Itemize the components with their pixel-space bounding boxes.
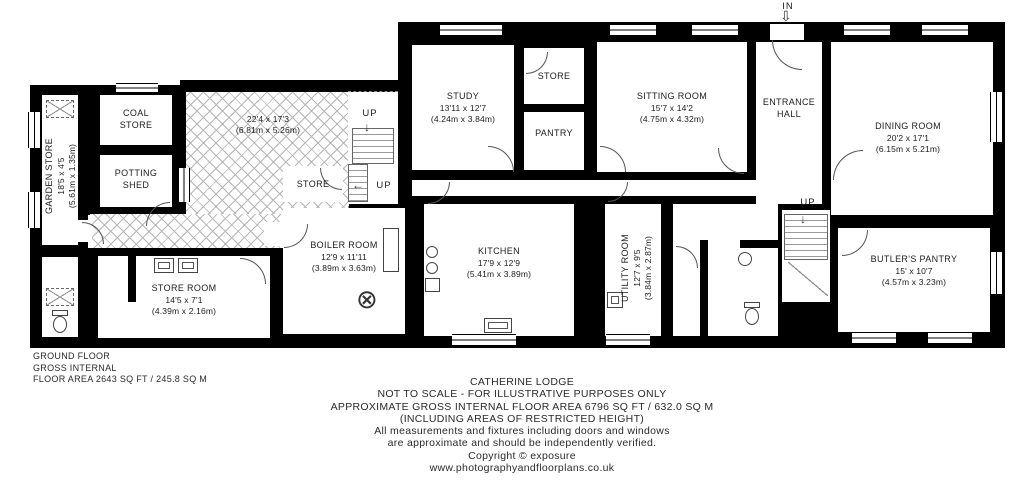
room-label-store-top: STORE [514,71,594,83]
appliance-icon [425,278,440,292]
front-door-opening [770,24,804,40]
window [606,334,650,346]
pantry-interior [524,112,584,170]
window [116,83,158,93]
staircase-main [784,214,828,260]
corridor-interior [412,180,756,196]
entrance-in-arrow-icon: ⇩ [780,8,792,25]
footer-line3: APPROXIMATE GROSS INTERNAL FLOOR AREA 67… [172,401,872,413]
window [922,24,968,36]
room-label-butlers-pantry: BUTLER'S PANTRY 15' x 10'7 (4.57m x 3.23… [834,254,994,288]
window [610,24,656,36]
room-label-courtyard: 22'4 x 17'3 (6.81m x 5.26m) [198,114,338,136]
window [28,112,41,148]
staircase-main-turn [788,262,828,296]
sink-icon [178,258,198,273]
room-label-dining-room: DINING ROOM 20'2 x 17'1 (6.15m x 5.21m) [838,121,978,155]
floorplan-canvas: ⊗ GARDEN STORE 18'5 x 4'5 (5.61m x 1.35m… [0,0,1024,482]
footer-line2: NOT TO SCALE - FOR ILLUSTRATIVE PURPOSES… [172,388,872,400]
room-label-entrance-hall: ENTRANCE HALL [749,97,829,120]
toilet-bowl-icon [53,316,67,333]
footer-copyright: Copyright © exposure [172,450,872,462]
plan-footer: CATHERINE LODGE NOT TO SCALE - FOR ILLUS… [172,376,872,474]
room-label-potting-shed: POTTING SHED [96,168,176,191]
room-label-coal-store: COAL STORE [96,108,176,131]
wc-lobby-interior [673,204,778,336]
down-arrow-icon: ↓ [800,212,806,226]
footer-url: www.photographyandfloorplans.co.uk [172,462,872,474]
window [928,332,972,344]
floor-summary-line1: GROUND FLOOR [33,351,293,363]
window [852,332,896,344]
floor-summary-line2: GROSS INTERNAL [33,363,293,375]
footer-line5: All measurements and fixtures including … [172,425,872,437]
room-label-utility-room: UTILITY ROOM 12'7 x 9'5 (3.84m x 2.87m) [620,208,652,328]
room-label-study: STUDY 13'11 x 12'7 (4.24m x 3.84m) [393,91,533,125]
room-label-sitting-room: SITTING ROOM 15'7 x 14'2 (4.75m x 4.32m) [602,91,742,125]
room-label-store-small: STORE [273,179,353,191]
room-label-kitchen: KITCHEN 17'9 x 12'9 (5.41m x 3.89m) [429,246,569,280]
window [452,334,516,346]
up-label-store-stairs: UP [366,180,402,191]
room-label-store-room: STORE ROOM 14'5 x 7'1 (4.39m x 2.16m) [114,283,254,317]
window [440,24,502,36]
room-label-pantry: PANTRY [514,128,594,140]
wall-wc-divider-v [700,240,708,336]
window [178,168,190,202]
up-label-main-stairs: UP [788,197,828,208]
staircase-courtyard [352,128,394,164]
window [990,92,1003,142]
left-arrow-icon: ← [352,178,364,192]
up-label-courtyard-stairs: UP [348,108,392,119]
room-label-garden-store: GARDEN STORE 18'5 x 4'5 (5.61m x 1.35m) [44,116,76,236]
footer-line6: are approximate and should be independen… [172,437,872,449]
window [692,24,738,36]
plan-title: CATHERINE LODGE [172,376,872,388]
sink-icon [154,258,174,273]
garden-table-icon [46,288,74,306]
courtyard-dashed-edge [348,91,398,92]
toilet-bowl-icon [745,308,759,325]
wall-wc-divider-h [740,240,778,248]
window [844,24,890,36]
wc-basin-icon [738,252,752,266]
room-label-boiler-room: BOILER ROOM 12'9 x 11'11 (3.89m x 3.63m) [274,240,414,274]
window [28,192,41,228]
kitchen-sink-icon [484,318,512,333]
boiler-symbol-icon: ⊗ [356,286,378,312]
footer-line4: (INCLUDING AREAS OF RESTRICTED HEIGHT) [172,413,872,425]
down-arrow-icon: ↓ [364,120,370,134]
